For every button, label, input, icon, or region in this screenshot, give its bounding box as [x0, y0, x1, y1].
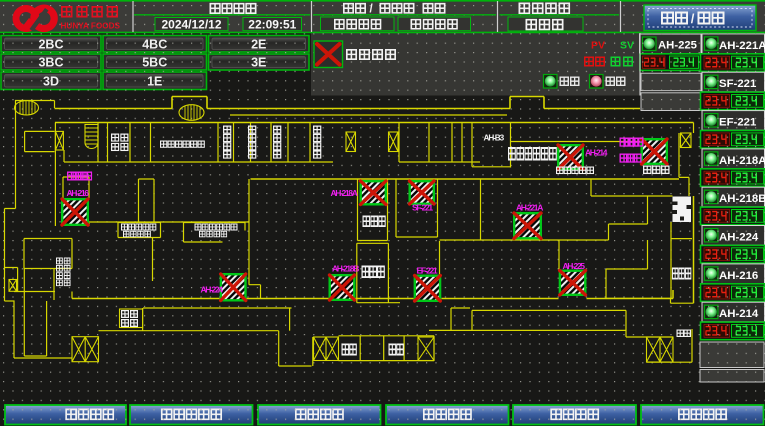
svg-text:AH-216: AH-216 [67, 188, 90, 198]
svg-text:HUNYA FOODS: HUNYA FOODS [61, 22, 121, 31]
svg-text:EF-221: EF-221 [417, 266, 438, 276]
svg-text:AH-224: AH-224 [201, 285, 224, 295]
svg-text:AH-B3: AH-B3 [484, 134, 505, 143]
svg-text:PV: PV [591, 40, 605, 52]
svg-text:AH-225: AH-225 [563, 261, 586, 271]
svg-text:AH-214: AH-214 [585, 148, 608, 158]
svg-text:22:09:51: 22:09:51 [248, 17, 296, 31]
svg-text:SF-221: SF-221 [412, 203, 433, 213]
svg-text:SV: SV [620, 40, 634, 52]
svg-text:/: / [691, 11, 695, 26]
svg-text:AH-221A: AH-221A [516, 203, 543, 213]
svg-text:AH-218B: AH-218B [332, 264, 359, 274]
svg-text:AH-218A: AH-218A [331, 188, 358, 198]
svg-text:2024/12/12: 2024/12/12 [161, 17, 221, 31]
